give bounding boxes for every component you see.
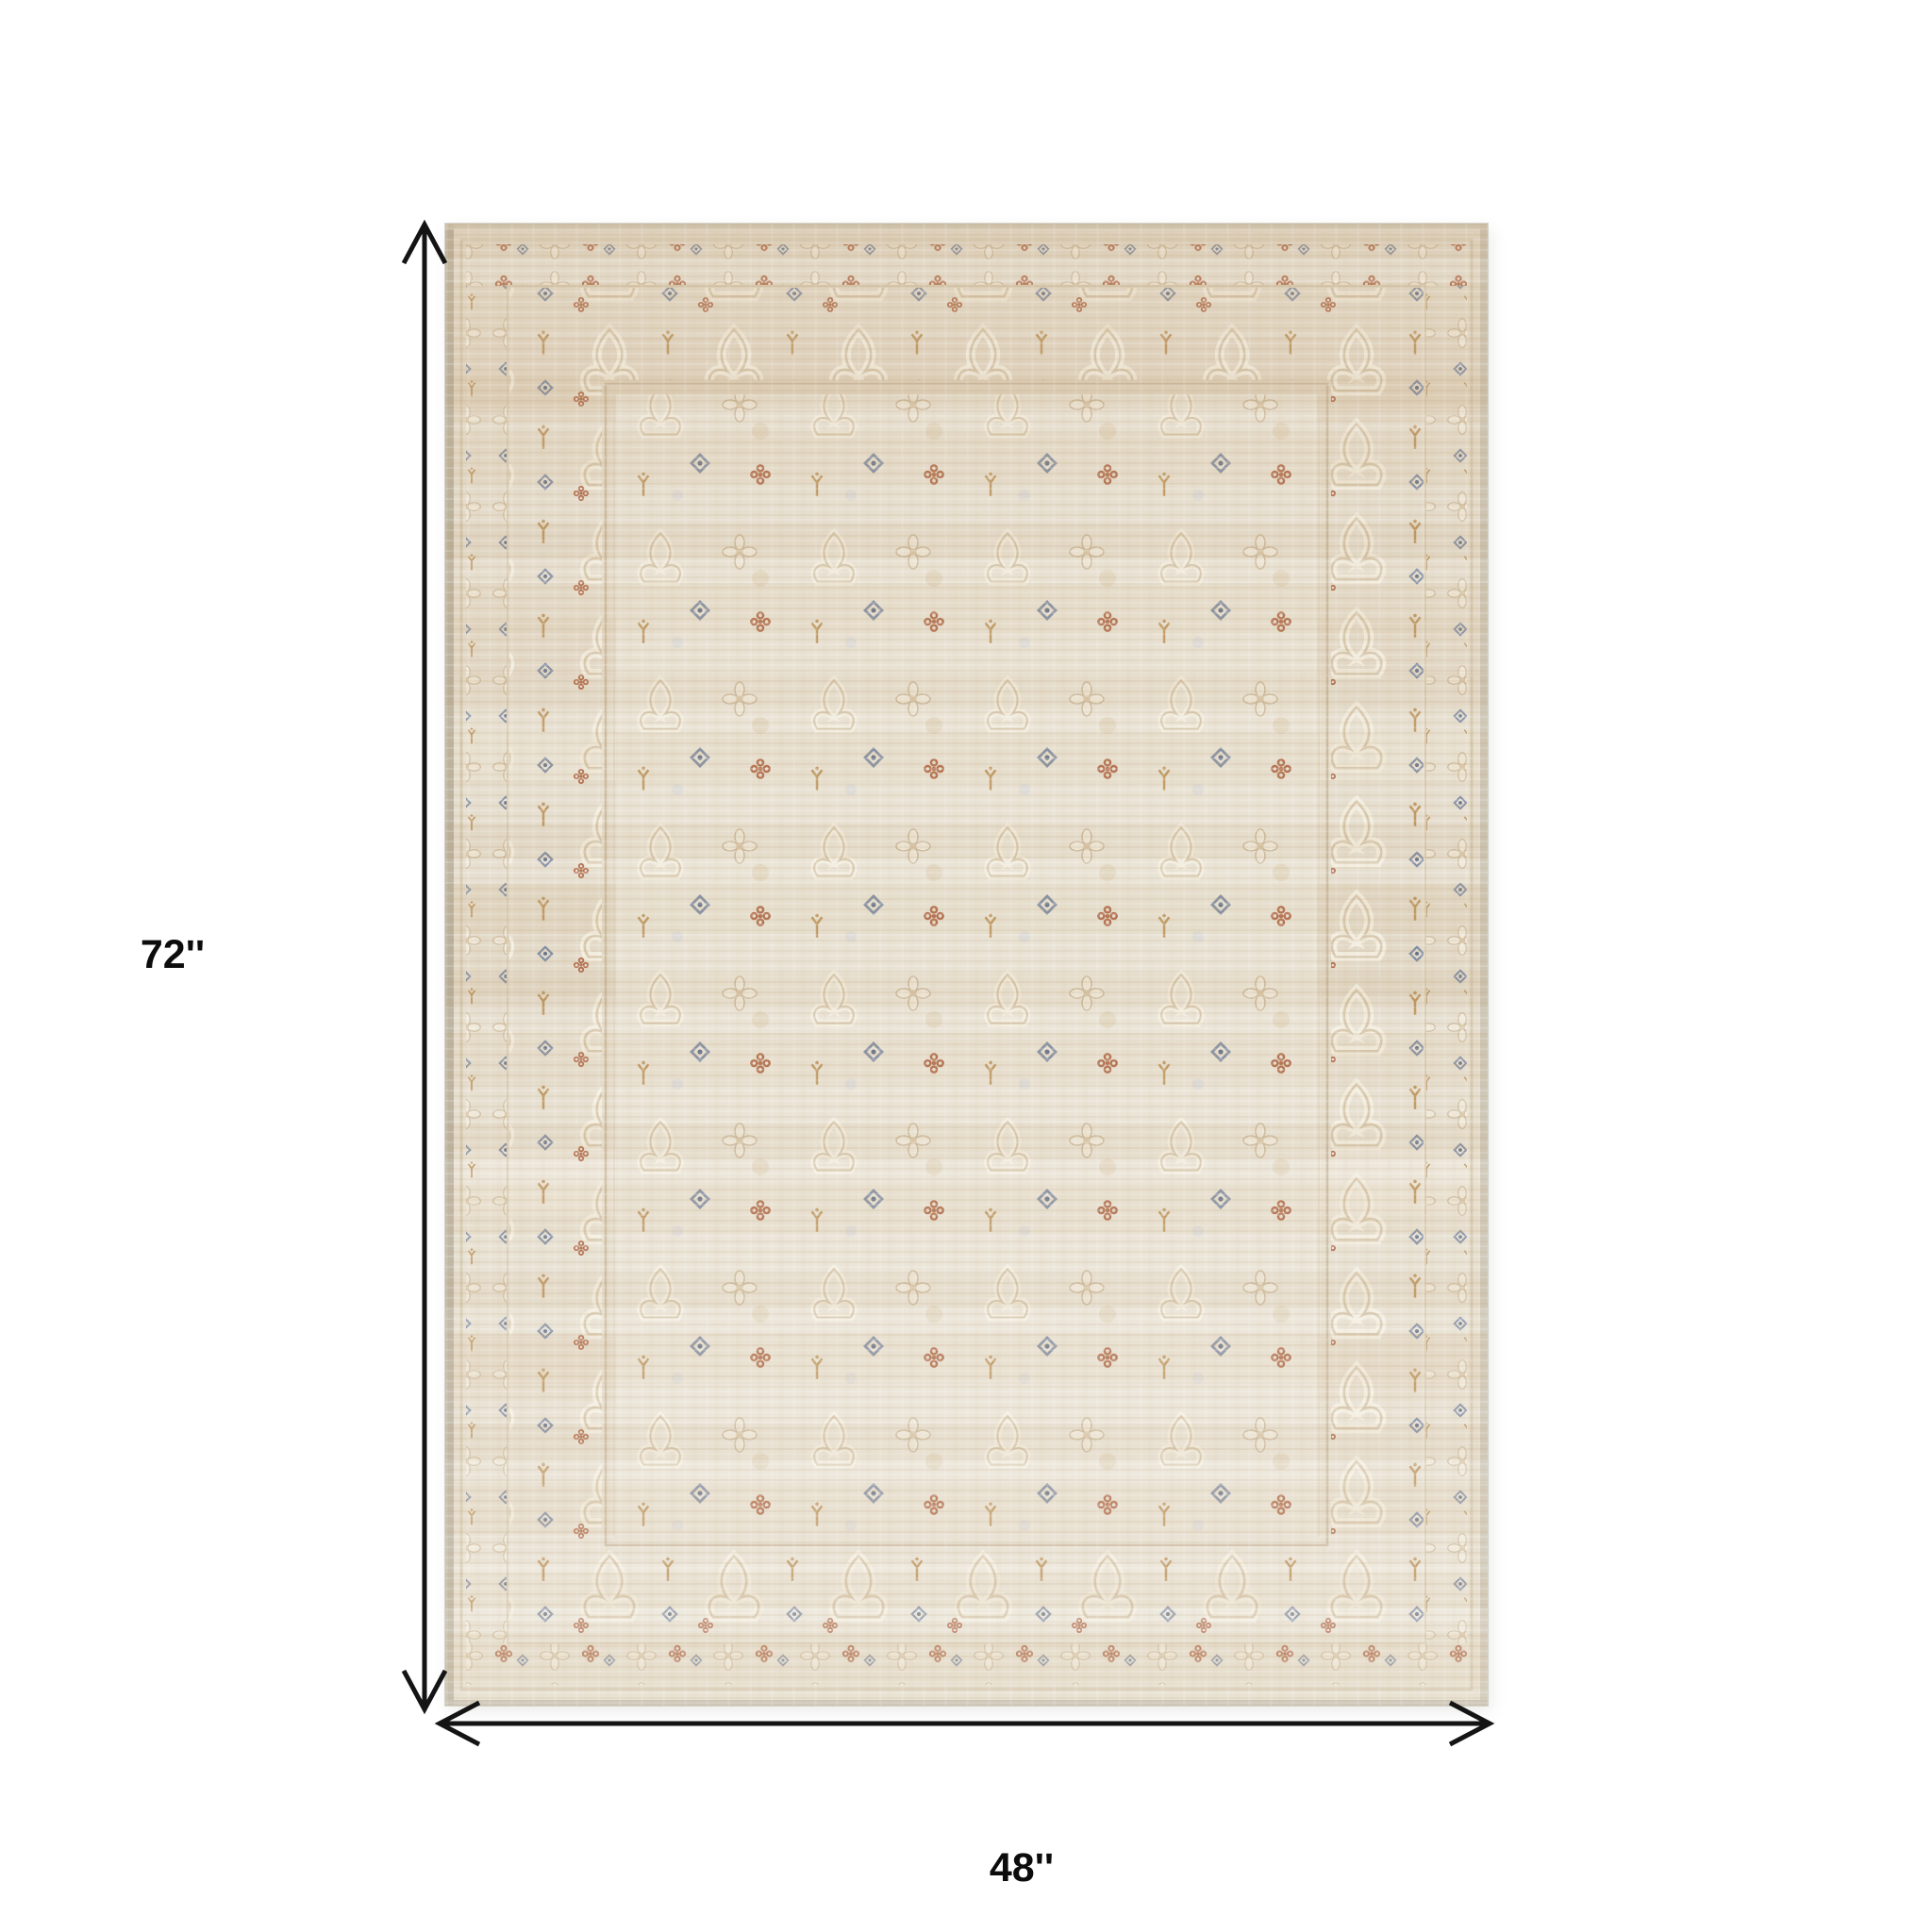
rug-pattern-svg xyxy=(445,224,1488,1706)
width-arrow-icon xyxy=(440,1703,1490,1744)
height-dimension-label: 72'' xyxy=(92,929,253,980)
product-dimension-diagram: 72'' 48'' xyxy=(0,0,1932,1932)
height-arrow-icon xyxy=(404,225,445,1709)
rug-image xyxy=(445,224,1488,1706)
width-dimension-label: 48'' xyxy=(941,1842,1102,1893)
